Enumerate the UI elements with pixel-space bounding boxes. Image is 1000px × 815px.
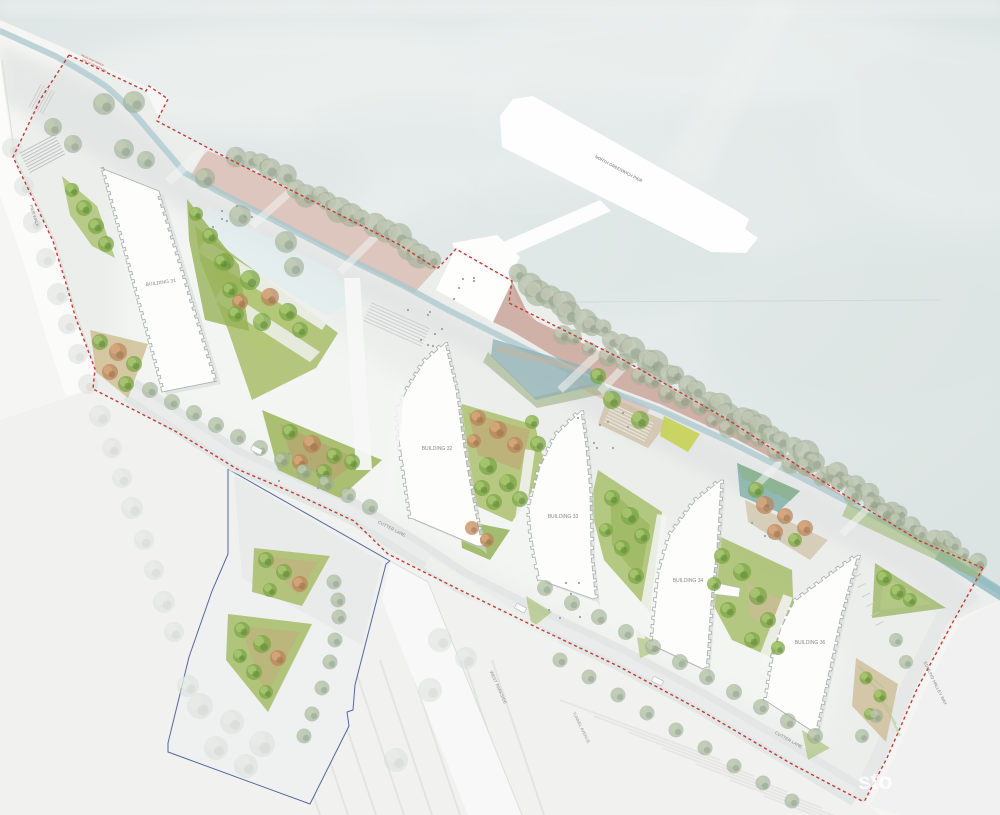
svg-text:BUILDING 32: BUILDING 32 [422, 446, 453, 452]
svg-text:BUILDING 33: BUILDING 33 [548, 514, 579, 520]
svg-text:BUILDING 36: BUILDING 36 [795, 640, 826, 646]
svg-text:BUILDING 34: BUILDING 34 [673, 578, 704, 584]
svg-text:sto: sto [858, 768, 893, 794]
